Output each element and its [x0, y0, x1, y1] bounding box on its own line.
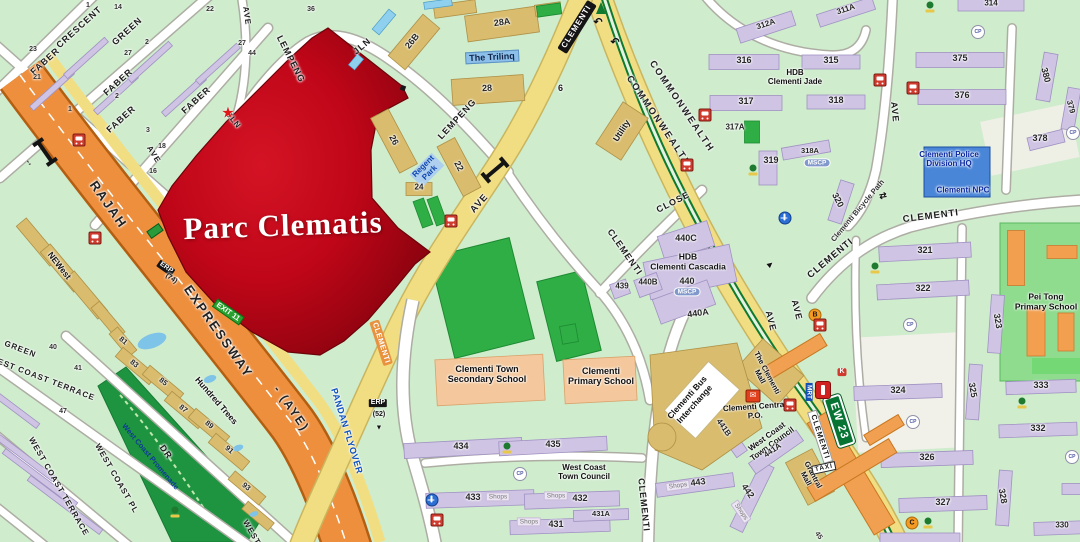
cp-icon: CP [971, 25, 985, 39]
map-label-432: 432 [572, 493, 587, 503]
map-label-434: 434 [453, 441, 468, 451]
map-label-close: CLOSE [655, 189, 692, 214]
gantry-icon [36, 140, 54, 164]
map-label-52: (52) [373, 411, 385, 419]
cp-icon: CP [1066, 126, 1080, 140]
map-label-375: 375 [952, 53, 967, 63]
map-label-clementi-bicycle-path: Clementi Bicycle Path [830, 178, 887, 243]
map-label-hdb-clementi-cascadia: HDB Clementi Cascadia [650, 252, 726, 271]
map-label-clementi: CLEMENTI [369, 319, 393, 366]
bus-icon [431, 514, 444, 527]
map-label-faber: FABER [104, 103, 137, 134]
map-label-319: 319 [763, 155, 778, 165]
map-label-west: WEST [240, 519, 261, 542]
map-label-layer: RAJAHEXPRESSWAY- (AYE)PANDAN FLYOVERCLEM… [0, 0, 1080, 542]
map-label-379: 379 [1064, 99, 1076, 114]
map-label-330: 330 [1055, 522, 1068, 531]
bus-icon [907, 82, 920, 95]
bus-icon [73, 134, 86, 147]
map-label-shops: Shops [486, 492, 510, 501]
map-label-6: 6 [558, 83, 564, 93]
bus-icon [784, 399, 797, 412]
map-label-k: K [837, 368, 846, 376]
map-label-green: GREEN [110, 15, 144, 47]
map-label-west-coast-terrace: WEST COAST TERRACE [26, 436, 90, 538]
map-label-west-coast-town-council: West Coast Town Council [558, 464, 610, 482]
map-label-431a: 431A [592, 510, 610, 518]
map-label-clementi: CLEMENTI [806, 237, 856, 281]
map-label-pei-tong-primary-school: Pei Tong Primary School [1015, 292, 1077, 311]
arr-icon: ⇄ [878, 190, 887, 202]
play-icon [170, 507, 181, 518]
map-label-27: 27 [238, 40, 246, 48]
map-label-328: 328 [997, 488, 1010, 505]
map-label-440c: 440C [675, 233, 697, 243]
map-label-green: GREEN [3, 340, 37, 360]
arr-icon: ↔ [23, 155, 36, 168]
map-label-ave: AVE [764, 310, 779, 333]
map-label-318a: 318A [801, 147, 819, 155]
map-label-the-trilinq: The Trilinq [465, 50, 519, 65]
map-label-expressway: EXPRESSWAY [181, 283, 256, 381]
map-label-2: 2 [145, 39, 149, 47]
map-label-327: 327 [935, 497, 950, 507]
map-label-3: 3 [146, 127, 150, 135]
map-label-ew-23: EW 23 [822, 393, 855, 448]
map-label-west-coast-terrace: WEST COAST TERRACE [0, 355, 96, 404]
map-label-shops: Shops [544, 491, 568, 500]
map-label-332: 332 [1030, 423, 1045, 433]
map-label-shops: Shops [730, 499, 752, 524]
post-icon: ✉ [746, 390, 761, 403]
map-label-376: 376 [954, 90, 969, 100]
map-label-clementi: CLEMENTI [557, 0, 596, 54]
dn-icon: ▼ [376, 425, 383, 432]
bus-icon [89, 232, 102, 245]
map-label-443: 443 [690, 476, 706, 488]
bus-icon [814, 319, 827, 332]
map-label-1: 1 [68, 106, 72, 114]
map-label-85: 85 [157, 376, 169, 388]
map-label-clementi-primary-school: Clementi Primary School [568, 366, 634, 386]
map-label-378: 378 [1032, 133, 1047, 143]
uturn-icon: ↶ [610, 36, 619, 49]
greenpost-icon [146, 223, 163, 239]
map-label-clementi-town-secondary-school: Clementi Town Secondary School [448, 364, 527, 384]
map-label-mscp: MSCP [804, 158, 831, 167]
map-label-40: 40 [49, 344, 57, 352]
map-label-commonwealth: COMMONWEALTH [623, 74, 692, 170]
map-label-26b: 26B [403, 31, 421, 50]
cp-icon: CP [513, 467, 527, 481]
mrtlogo-icon [815, 381, 831, 399]
map-label-28: 28 [482, 83, 493, 94]
play-icon [923, 518, 934, 529]
map-label-ave: AVE [889, 101, 901, 123]
map-label-22: 22 [206, 6, 214, 14]
map-label-clementi-npc: Clementi NPC [937, 187, 990, 196]
map-label-14: 14 [114, 4, 122, 12]
map-label-1: 1 [86, 2, 90, 10]
map-label-324: 324 [890, 385, 905, 395]
map-label-318: 318 [828, 95, 843, 105]
map-label-clementi: CLEMENTI [902, 208, 959, 225]
map-label-320: 320 [830, 191, 846, 209]
map-label-317a: 317A [725, 124, 744, 133]
map-label-ave: AVE [469, 192, 492, 215]
map-label-2: 2 [115, 93, 119, 101]
uturn-icon: ↶ [593, 16, 602, 29]
star-icon: ★ [221, 106, 234, 121]
map-label-clementi: CLEMENTI [605, 227, 644, 277]
arr-icon: ► [763, 257, 776, 270]
map-label-322: 322 [915, 283, 930, 293]
map-label-442: 442 [740, 482, 757, 500]
gantry-icon [484, 160, 506, 180]
map-label-21: 21 [33, 74, 41, 82]
map-label-ave: AVE [240, 6, 251, 26]
map-label-333: 333 [1033, 380, 1048, 390]
map-label-440: 440 [679, 276, 694, 286]
map-label-317: 317 [738, 96, 753, 106]
map-label-newest: NEWest [45, 250, 72, 281]
map-label-erp: ERP [369, 399, 387, 407]
map-label-clementi-central-p-o: Clementi Central P.O. [723, 401, 788, 423]
map-label-440b: 440B [638, 279, 657, 288]
map-label-clementi-bus-interchange: Clementi Bus Interchange [666, 374, 716, 427]
map-label-325: 325 [967, 382, 980, 399]
map-label-323: 323 [992, 313, 1005, 330]
map-label-36: 36 [307, 6, 315, 14]
bus-icon [445, 215, 458, 228]
map-label-83: 83 [128, 358, 140, 370]
map-label-pandan-flyover: PANDAN FLYOVER [329, 387, 365, 475]
map-label-87: 87 [177, 403, 189, 415]
map-label-41: 41 [74, 365, 82, 373]
play-icon [870, 263, 881, 274]
map-label-314: 314 [984, 0, 997, 8]
map-label-jln: JLN [351, 36, 373, 57]
map-label-lempeng: LEMPENG [275, 34, 307, 84]
map-label-431: 431 [548, 519, 563, 529]
map-label-lempeng: LEMPENG [436, 97, 479, 142]
map-label-93: 93 [240, 481, 252, 493]
map-label-hundred-trees: Hundred Trees [193, 375, 239, 426]
map-label-435: 435 [545, 439, 560, 449]
map-label-440a: 440A [687, 307, 710, 320]
map-label-315: 315 [823, 55, 838, 65]
play-icon [1017, 398, 1028, 409]
map-label-326: 326 [919, 452, 934, 462]
map-label-shops: Shops [665, 480, 690, 493]
street-directory-map[interactable]: RAJAHEXPRESSWAY- (AYE)PANDAN FLYOVERCLEM… [0, 0, 1080, 542]
map-label-parc-clematis: Parc Clematis [183, 205, 383, 247]
map-label-45: 45 [813, 531, 824, 542]
map-label-crescent: CRESCENT [54, 4, 103, 50]
globe-icon [426, 494, 439, 507]
map-label-23: 23 [29, 46, 37, 54]
map-label-27: 27 [124, 50, 132, 58]
map-label-22: 22 [452, 159, 466, 173]
map-label-dr: DR [158, 443, 175, 461]
map-label-16: 16 [149, 168, 157, 176]
play-icon [502, 443, 513, 454]
map-label-clementi: CLEMENTI [636, 478, 652, 533]
map-label-aye: - (AYE) [270, 383, 311, 434]
map-label-hdb-clementi-jade: HDB Clementi Jade [768, 69, 822, 87]
map-label-ave: AVE [790, 299, 805, 322]
map-label-clementi-police-division-hq: Clementi Police Division HQ [919, 151, 979, 169]
map-label-316: 316 [736, 55, 751, 65]
map-label-91: 91 [223, 444, 235, 456]
bus-icon [874, 74, 887, 87]
cp-icon: CP [903, 318, 917, 332]
cp-icon: CP [906, 415, 920, 429]
map-label-312a: 312A [756, 18, 777, 32]
map-label-rajah: RAJAH [86, 178, 129, 231]
map-label-433: 433 [465, 492, 480, 502]
map-label-47: 47 [59, 408, 67, 416]
map-label-24: 24 [415, 184, 424, 193]
map-label-321: 321 [917, 245, 932, 255]
map-label-89: 89 [203, 419, 215, 431]
map-label-mrt: MRT [805, 383, 812, 401]
map-label-18: 18 [158, 143, 166, 151]
cp-icon: CP [1065, 450, 1079, 464]
play-icon [748, 165, 759, 176]
map-label-faber: FABER [179, 84, 212, 115]
map-label-81: 81 [117, 335, 129, 347]
map-label-west-coast-pl: WEST COAST PL [92, 443, 139, 516]
map-label-commonwealth: COMMONWEALTH [646, 59, 715, 155]
map-label-439: 439 [615, 283, 628, 292]
map-label-taxi: TAXI [811, 461, 837, 475]
map-label-311a: 311A [836, 3, 857, 17]
bus-icon [681, 159, 694, 172]
globe-icon [779, 212, 792, 225]
map-label-utility: Utility [612, 119, 633, 144]
map-label-380: 380 [1039, 66, 1053, 83]
map-label-c: C [906, 517, 919, 530]
map-label-26: 26 [387, 133, 401, 147]
map-label-44: 44 [248, 50, 256, 58]
map-label-28a: 28A [493, 16, 511, 28]
map-label-mscp: MSCP [674, 287, 701, 296]
map-label-shops: Shops [517, 517, 541, 526]
play-icon [925, 2, 936, 13]
map-label-74: (74) [164, 272, 179, 286]
bus-icon [699, 109, 712, 122]
